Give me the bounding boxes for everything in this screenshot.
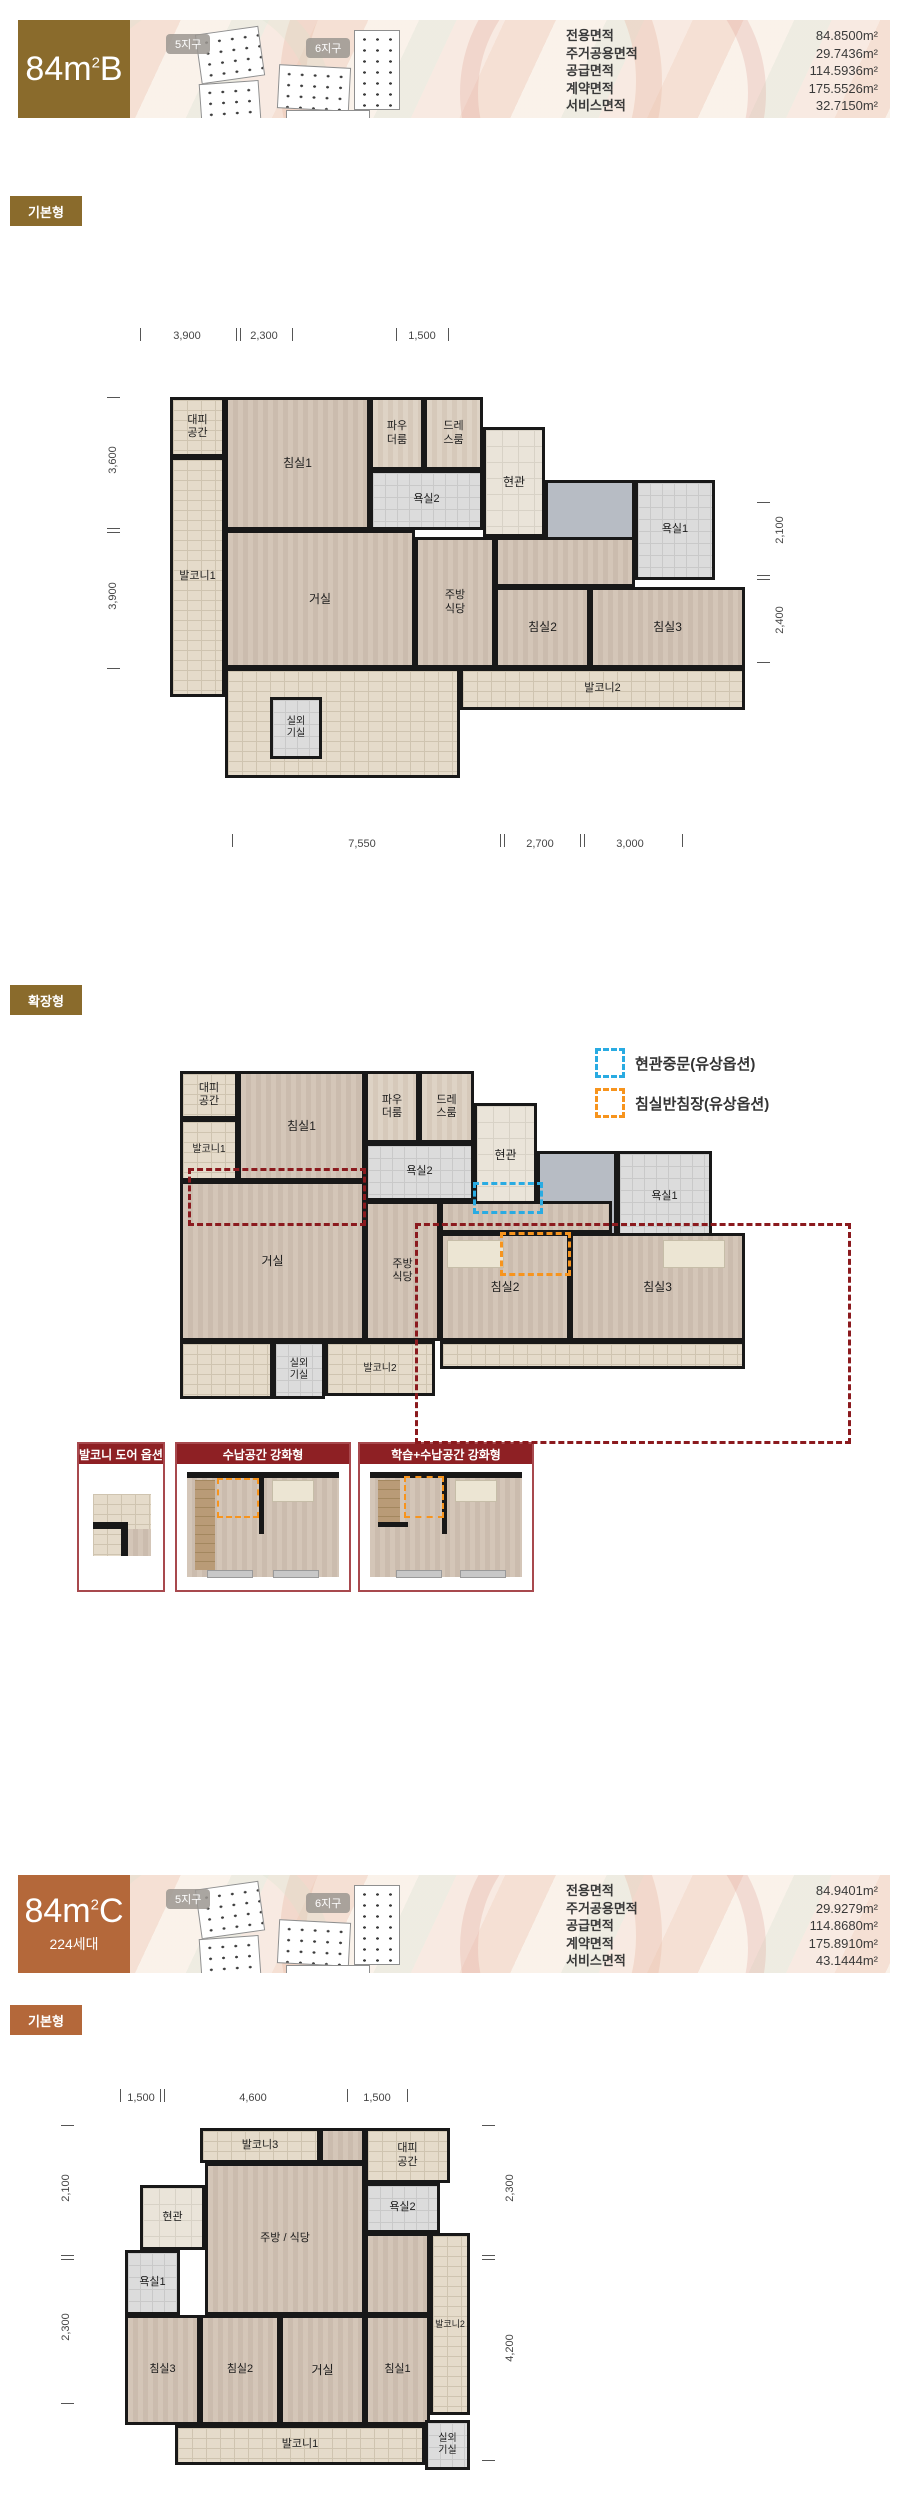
area-value: 114.8680m² <box>810 1917 878 1935</box>
area-label: 서비스면적 <box>566 1952 626 1970</box>
mini-wall <box>121 1522 128 1556</box>
site-plan-band-b: 5지구 6지구 전용면적84.8500m² 주거공용면적29.7436m² 공급… <box>130 20 890 118</box>
area-label: 전용면적 <box>566 1882 614 1900</box>
room-bedroom2: 침실2 <box>495 587 590 668</box>
dim-top: 1,500 <box>392 330 452 342</box>
room-outdoor-unit: 실외 기실 <box>425 2420 470 2470</box>
unit-b-num: 84 <box>25 50 63 88</box>
room-kitchen: 주방 식당 <box>415 537 495 668</box>
mini-window <box>207 1570 253 1578</box>
room-powder: 파우 더룸 <box>370 397 424 470</box>
area-value: 29.9279m² <box>816 1900 878 1918</box>
unit-b-title: 84m2B <box>18 20 130 118</box>
mini-wall <box>378 1522 408 1527</box>
option-title: 수납공간 강화형 <box>177 1444 349 1464</box>
option-title: 학습+수납공간 강화형 <box>360 1444 532 1464</box>
area-value: 29.7436m² <box>816 45 878 63</box>
unit-b-header: 84m2B 5지구 6지구 전용면적84.8500m² 주거공용면적29.743… <box>18 20 890 118</box>
room-bedroom1: 침실1 <box>365 2315 430 2425</box>
dim-left: 3,900 <box>107 561 119 631</box>
room-living: 거실 <box>225 530 415 668</box>
unit-c-households: 224세대 <box>49 1934 98 1954</box>
unit-b-sup: 2 <box>92 55 100 72</box>
dim-right: 4,200 <box>504 2313 516 2383</box>
unit-b-name: 84m2B <box>25 52 122 86</box>
badge-basic-b: 기본형 <box>10 196 82 226</box>
floorplan-brochure-page: { "colors": { "brand_b": "#8a6b2c", "bra… <box>0 0 900 2499</box>
room-outdoor-unit: 실외 기실 <box>273 1341 325 1399</box>
room-bedroom3: 침실3 <box>125 2315 200 2425</box>
dim-tick <box>107 528 120 529</box>
area-label: 계약면적 <box>566 1935 614 1953</box>
room-entrance: 현관 <box>140 2185 205 2250</box>
room-bath2: 욕실2 <box>365 2183 440 2233</box>
site-block <box>277 64 351 112</box>
dim-top: 3,900 <box>157 330 217 342</box>
dim-top: 1,500 <box>347 2092 407 2104</box>
room-dressroom: 드레 스룸 <box>419 1071 474 1143</box>
mini-wall <box>259 1472 264 1534</box>
dim-top: 1,500 <box>111 2092 171 2104</box>
option-box-storage: 수납공간 강화형 <box>175 1442 351 1592</box>
area-row: 전용면적84.9401m² <box>566 1882 878 1900</box>
option-box-balcony-door: 발코니 도어 옵션 <box>77 1442 165 1592</box>
area-value: 114.5936m² <box>810 62 878 80</box>
site-block <box>286 1965 370 1973</box>
area-label: 서비스면적 <box>566 97 626 115</box>
district-5-badge: 5지구 <box>166 1889 210 1909</box>
mini-window <box>273 1570 319 1578</box>
dim-tick <box>140 328 141 341</box>
dim-tick <box>757 662 770 663</box>
area-label: 공급면적 <box>566 1917 614 1935</box>
room-bath1: 욕실1 <box>125 2250 180 2315</box>
area-value: 32.7150m² <box>816 97 878 115</box>
badge-extended-b: 확장형 <box>10 985 82 1015</box>
option-title: 발코니 도어 옵션 <box>79 1444 163 1464</box>
room-living: 거실 <box>280 2315 365 2425</box>
balcony-door-option-dash <box>188 1168 366 1226</box>
unit-c-variant: C <box>99 1892 124 1930</box>
mini-desk <box>378 1480 400 1524</box>
site-block <box>199 80 262 118</box>
dim-right: 2,100 <box>774 495 786 565</box>
dim-tick <box>107 397 120 398</box>
dim-bottom: 3,000 <box>600 838 660 850</box>
mini-floor <box>128 1529 151 1556</box>
area-row: 주거공용면적29.9279m² <box>566 1900 878 1918</box>
area-table-c: 전용면적84.9401m² 주거공용면적29.9279m² 공급면적114.86… <box>566 1882 878 1970</box>
room-bedroom2: 침실2 <box>200 2315 280 2425</box>
area-table-b: 전용면적84.8500m² 주거공용면적29.7436m² 공급면적114.59… <box>566 27 878 115</box>
unit-c-sup: 2 <box>91 1897 99 1914</box>
room-hall <box>495 537 635 587</box>
dim-tick <box>107 668 120 669</box>
room-hall <box>365 2233 430 2315</box>
site-block <box>354 30 400 110</box>
dim-tick <box>61 2403 74 2404</box>
area-row: 전용면적84.8500m² <box>566 27 878 45</box>
area-row: 서비스면적43.1444m² <box>566 1952 878 1970</box>
room-balcony2: 발코니2 <box>430 2233 470 2415</box>
site-block <box>277 1919 351 1967</box>
dim-left: 3,600 <box>107 425 119 495</box>
site-block <box>199 1935 262 1973</box>
room-bath2: 욕실2 <box>370 470 483 530</box>
site-block <box>286 110 370 118</box>
room-powder: 파우 더룸 <box>365 1071 419 1143</box>
unit-c-header: 84m2C 224세대 5지구 6지구 전용면적84.9401m² 주거공용면적… <box>18 1875 890 1973</box>
badge-basic-c: 기본형 <box>10 2005 82 2035</box>
option-mini-plan <box>79 1464 163 1590</box>
room-bath1: 욕실1 <box>635 480 715 580</box>
entrance-middle-door-dash <box>473 1182 543 1214</box>
option-box-study-storage: 학습+수납공간 강화형 <box>358 1442 534 1592</box>
dim-tick <box>482 2125 495 2126</box>
room-outdoor-unit: 실외 기실 <box>270 697 322 759</box>
mini-orange-dash <box>217 1478 259 1518</box>
mini-bed <box>272 1480 314 1502</box>
room-shelter: 대피 공간 <box>170 397 225 457</box>
mini-closet <box>195 1480 215 1570</box>
area-row: 공급면적114.5936m² <box>566 62 878 80</box>
room-entrance: 현관 <box>483 427 545 537</box>
plan-b-basic: 3,900 2,300 1,500 3,600 3,900 2,100 2,40… <box>165 392 745 802</box>
dim-tick <box>482 2255 495 2256</box>
bedroom-closet-option-dash <box>500 1232 571 1276</box>
dim-right: 2,300 <box>504 2153 516 2223</box>
unit-c-unit: m <box>62 1892 90 1930</box>
room-pantry <box>320 2128 365 2163</box>
plan-c-basic: 1,500 4,600 1,500 2,100 2,300 2,300 4,20… <box>115 2125 470 2475</box>
unit-b-variant: B <box>100 50 123 88</box>
room-balcony3: 발코니3 <box>200 2128 320 2163</box>
dim-top: 2,300 <box>234 330 294 342</box>
dim-tick <box>682 834 683 847</box>
area-row: 공급면적114.8680m² <box>566 1917 878 1935</box>
area-value: 175.5526m² <box>809 80 878 98</box>
area-row: 계약면적175.5526m² <box>566 80 878 98</box>
dim-tick <box>580 834 581 847</box>
area-value: 175.8910m² <box>809 1935 878 1953</box>
option-mini-plan <box>177 1464 349 1590</box>
unit-c-name: 84m2C <box>24 1894 123 1928</box>
district-6-badge: 6지구 <box>306 38 350 58</box>
room-lower-terrace <box>225 668 460 778</box>
site-block <box>354 1885 400 1965</box>
district-5-badge: 5지구 <box>166 34 210 54</box>
room-bedroom1: 침실1 <box>225 397 370 530</box>
area-row: 서비스면적32.7150m² <box>566 97 878 115</box>
dim-tick <box>500 834 501 847</box>
area-value: 84.9401m² <box>816 1882 878 1900</box>
area-row: 계약면적175.8910m² <box>566 1935 878 1953</box>
unit-b-unit: m <box>63 50 91 88</box>
bedroom-extension-dash <box>415 1223 851 1444</box>
area-label: 전용면적 <box>566 27 614 45</box>
room-bedroom1: 침실1 <box>238 1071 365 1181</box>
dim-top: 4,600 <box>223 2092 283 2104</box>
mini-orange-dash <box>404 1476 444 1518</box>
area-label: 계약면적 <box>566 80 614 98</box>
mini-window <box>460 1570 506 1578</box>
room-balcony2: 발코니2 <box>460 668 745 710</box>
dim-tick <box>61 2125 74 2126</box>
area-label: 주거공용면적 <box>566 1900 638 1918</box>
plan-b-extended: 대피 공간 발코니1 침실1 파우 더룸 드레 스룸 욕실2 현관 욕실1 거실… <box>165 1063 745 1438</box>
dim-tick <box>232 834 233 847</box>
room-shelter: 대피 공간 <box>365 2128 450 2183</box>
room-bath2: 욕실2 <box>365 1143 474 1201</box>
dim-bottom: 2,700 <box>510 838 570 850</box>
dim-tick <box>407 2089 408 2102</box>
room-dressroom: 드레 스룸 <box>424 397 483 470</box>
dim-bottom: 7,550 <box>332 838 392 850</box>
dim-tick <box>757 502 770 503</box>
mini-window <box>396 1570 442 1578</box>
dim-tick <box>482 2460 495 2461</box>
option-mini-plan <box>360 1464 532 1590</box>
mini-bed <box>455 1480 497 1502</box>
area-label: 주거공용면적 <box>566 45 638 63</box>
dim-right: 2,400 <box>774 585 786 655</box>
dim-left: 2,300 <box>60 2292 72 2362</box>
room-kitchen: 주방 / 식당 <box>205 2163 365 2315</box>
dim-tick <box>61 2255 74 2256</box>
dim-left: 2,100 <box>60 2153 72 2223</box>
room-lower-terrace <box>180 1341 273 1399</box>
area-value: 84.8500m² <box>816 27 878 45</box>
room-bedroom3: 침실3 <box>590 587 745 668</box>
district-6-badge: 6지구 <box>306 1893 350 1913</box>
site-plan-band-c: 5지구 6지구 전용면적84.9401m² 주거공용면적29.9279m² 공급… <box>130 1875 890 1973</box>
unit-c-title: 84m2C 224세대 <box>18 1875 130 1973</box>
area-row: 주거공용면적29.7436m² <box>566 45 878 63</box>
unit-c-num: 84 <box>24 1892 62 1930</box>
dim-tick <box>757 575 770 576</box>
room-balcony1: 발코니1 <box>175 2425 425 2465</box>
room-balcony1: 발코니1 <box>170 457 225 697</box>
area-value: 43.1444m² <box>816 1952 878 1970</box>
area-label: 공급면적 <box>566 62 614 80</box>
room-shelter: 대피 공간 <box>180 1071 238 1119</box>
